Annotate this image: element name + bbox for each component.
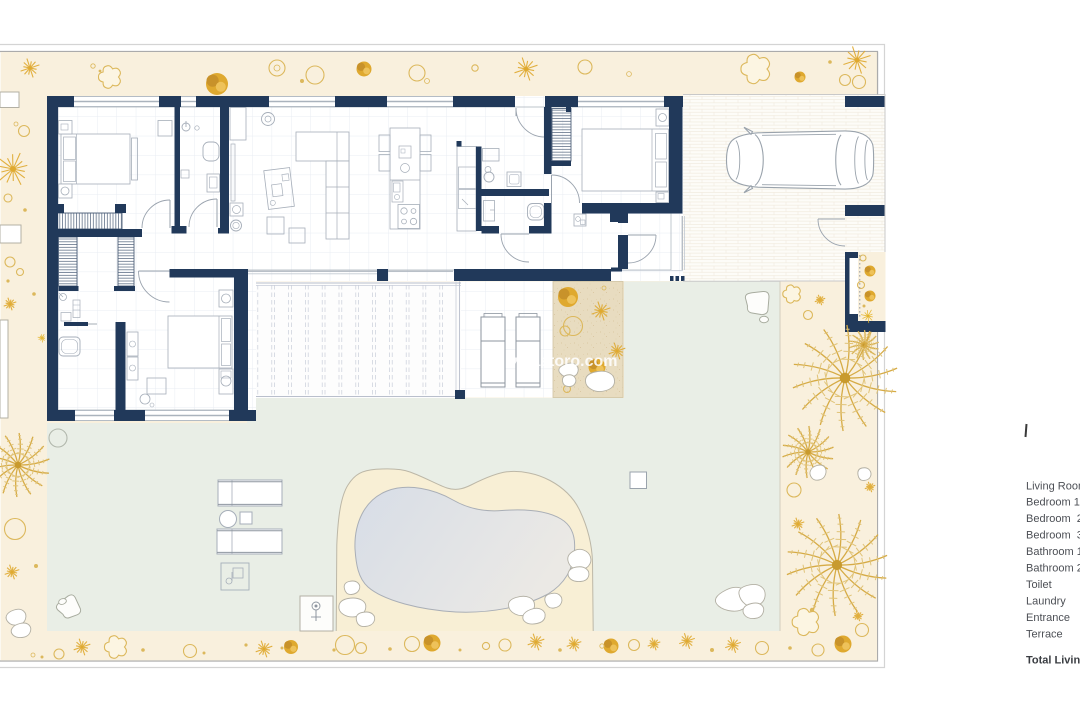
svg-text:Bedroom 1: Bedroom 1 — [1026, 497, 1080, 509]
svg-text:Entrance: Entrance — [1026, 612, 1070, 624]
svg-text:Toilet: Toilet — [1026, 579, 1052, 591]
svg-text:Bathroom 1: Bathroom 1 — [1026, 546, 1080, 558]
svg-text:villastoro.com: villastoro.com — [509, 353, 617, 370]
svg-text:Bedroom 2: Bedroom 2 — [1026, 513, 1080, 525]
svg-text:Bedroom 3: Bedroom 3 — [1026, 530, 1080, 542]
svg-text:Living Room: Living Room — [1026, 480, 1080, 492]
svg-text:Terrace: Terrace — [1026, 628, 1063, 640]
svg-text:Total Living: Total Living — [1026, 655, 1080, 667]
svg-text:Laundry: Laundry — [1026, 595, 1066, 607]
svg-text:Bathroom 2: Bathroom 2 — [1026, 563, 1080, 575]
